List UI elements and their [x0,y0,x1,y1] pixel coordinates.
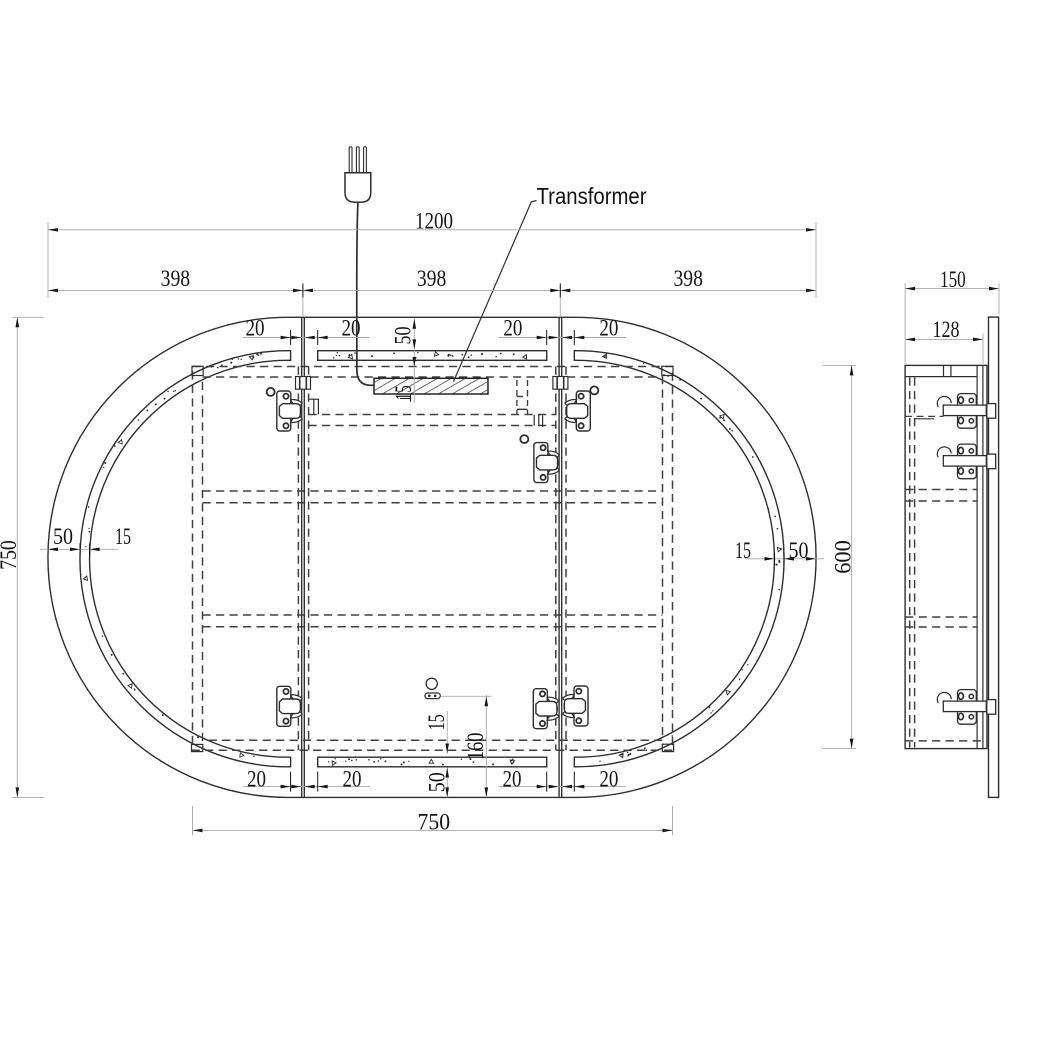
svg-text:50: 50 [789,538,809,563]
svg-text:398: 398 [161,266,191,291]
svg-text:20: 20 [247,767,266,792]
svg-text:20: 20 [342,315,361,340]
svg-text:50: 50 [424,772,449,792]
svg-text:20: 20 [503,767,522,792]
svg-text:15: 15 [391,385,416,400]
svg-text:20: 20 [599,767,618,792]
svg-text:398: 398 [417,266,447,291]
svg-text:1200: 1200 [415,209,453,234]
svg-text:50: 50 [53,524,73,549]
svg-text:600: 600 [831,540,856,574]
svg-text:750: 750 [0,540,21,570]
svg-text:50: 50 [391,327,416,345]
svg-text:Transformer: Transformer [537,183,647,209]
svg-text:750: 750 [418,810,451,835]
svg-text:128: 128 [933,317,960,342]
svg-text:15: 15 [115,524,131,549]
svg-text:160: 160 [463,733,488,760]
svg-text:15: 15 [424,714,449,730]
svg-text:20: 20 [503,315,522,340]
svg-text:20: 20 [246,315,265,340]
svg-text:20: 20 [599,315,618,340]
svg-text:15: 15 [735,538,751,563]
svg-text:150: 150 [940,267,966,292]
svg-text:20: 20 [343,767,362,792]
svg-text:398: 398 [673,266,703,291]
